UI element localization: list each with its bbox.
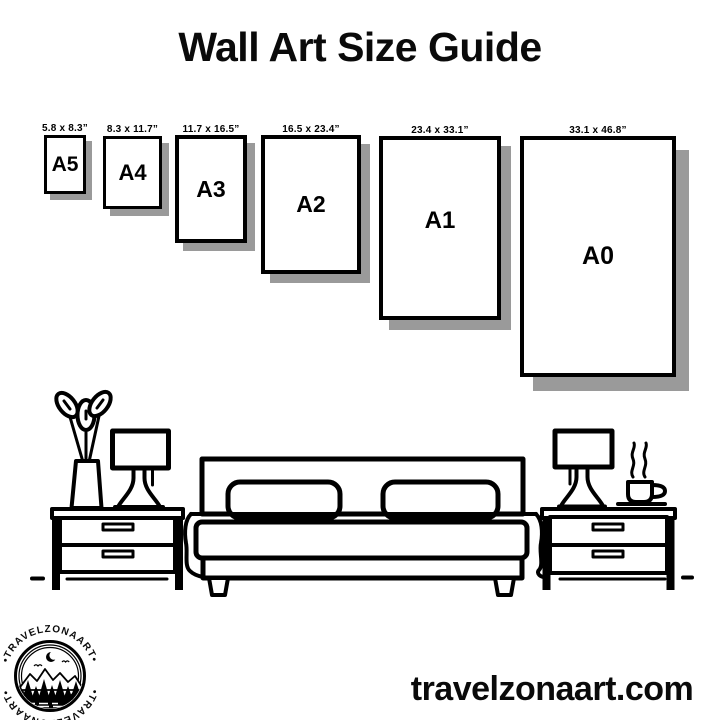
frame-a4: 8.3 x 11.7” A4 [103, 136, 162, 209]
brand-logo: •TRAVELZONAART• •TRAVELZONAART• [0, 620, 102, 720]
size-label-a3: 11.7 x 16.5” [183, 124, 240, 135]
size-label-a1: 23.4 x 33.1” [411, 125, 468, 136]
frame-letter-a2: A2 [296, 191, 325, 218]
size-label-a2: 16.5 x 23.4” [282, 124, 339, 135]
frame-letter-a3: A3 [196, 176, 225, 203]
bed-icon [185, 459, 547, 595]
plant-icon [52, 388, 115, 508]
wall-art-size-guide: Wall Art Size Guide 5.8 x 8.3” A5 8.3 x … [0, 0, 720, 720]
frame-letter-a4: A4 [118, 160, 146, 186]
frame-letter-a0: A0 [582, 242, 614, 271]
size-label-a4: 8.3 x 11.7” [107, 124, 158, 135]
page-title: Wall Art Size Guide [0, 24, 720, 71]
table-lamp-left-icon [113, 431, 169, 507]
frame-letter-a5: A5 [52, 153, 79, 177]
coffee-cup-icon [618, 443, 665, 504]
frame-letter-a1: A1 [425, 207, 456, 235]
frame-a5: 5.8 x 8.3” A5 [44, 135, 86, 194]
frame-a0: 33.1 x 46.8” A0 [520, 136, 676, 377]
nightstand-left [32, 509, 183, 590]
frame-a3: 11.7 x 16.5” A3 [175, 135, 247, 243]
frame-a1: 23.4 x 33.1” A1 [379, 136, 501, 320]
size-label-a0: 33.1 x 46.8” [569, 125, 626, 136]
frame-a2: 16.5 x 23.4” A2 [261, 135, 361, 274]
table-lamp-right-icon [555, 431, 612, 507]
bedroom-illustration [0, 380, 720, 600]
website-text: travelzonaart.com [390, 670, 714, 709]
nightstand-right [542, 509, 692, 590]
size-label-a5: 5.8 x 8.3” [42, 123, 88, 134]
